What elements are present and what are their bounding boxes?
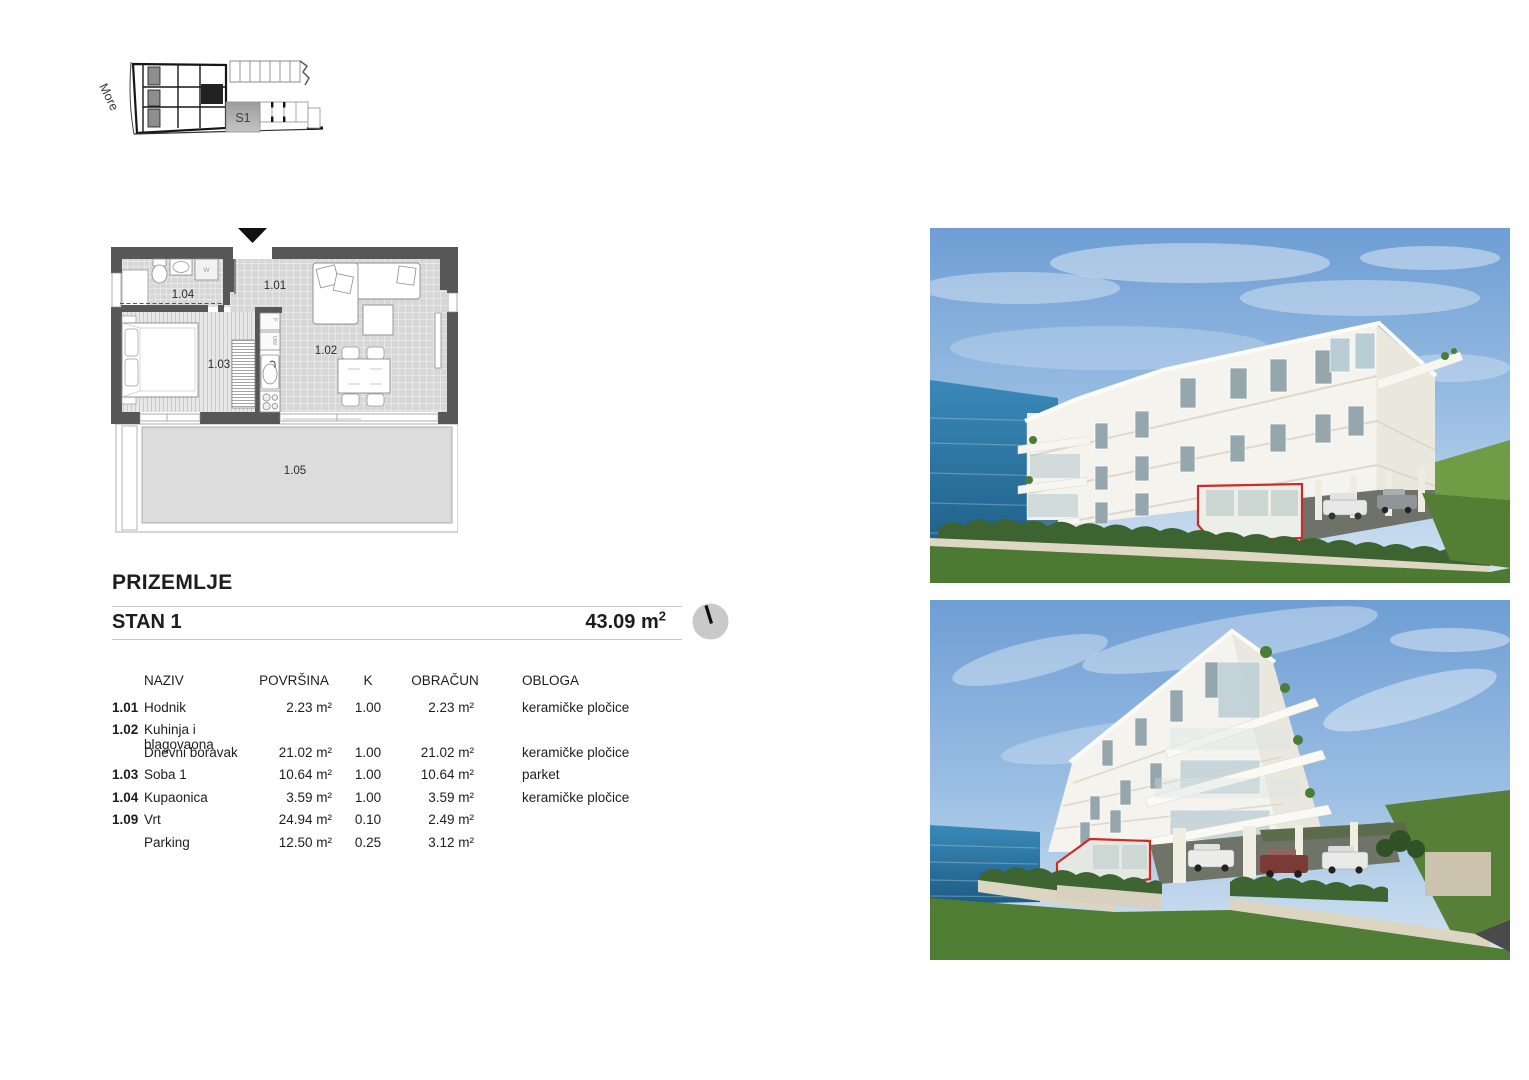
site-unit-s1-label: S1 [235, 111, 250, 125]
table-row: 1.04 Kupaonica 3.59 m² 1.00 3.59 m² kera… [112, 790, 732, 813]
terrace-garden [116, 424, 458, 532]
coffee-table [363, 305, 393, 335]
table-row: Dnevni boravak 21.02 m² 1.00 21.02 m² ke… [112, 745, 732, 768]
row-id: 1.04 [112, 790, 144, 805]
room-name: Dnevni boravak [144, 745, 256, 760]
room-name: Hodnik [144, 700, 256, 715]
room-name: Kupaonica [144, 790, 256, 805]
site-unit-s1: S1 [226, 102, 260, 132]
fridge-label: F [271, 318, 277, 322]
washing-machine-label: W [203, 267, 210, 274]
kitchen-counter [260, 313, 280, 412]
floor-title: PRIZEMLJE [112, 571, 233, 595]
table-row: Parking 12.50 m² 0.25 3.12 m² [112, 835, 732, 858]
area-value: 3.59 m² [256, 790, 332, 805]
site-parking-row-top [230, 61, 309, 85]
divider [112, 639, 682, 640]
table-row: 1.03 Soba 1 10.64 m² 1.00 10.64 m² parke… [112, 767, 732, 790]
area-value: 10.64 m² [256, 767, 332, 782]
unit-total-area: 43.09 m2 [585, 611, 682, 634]
calculated-area: 2.23 m² [404, 700, 486, 715]
table-row: 1.01 Hodnik 2.23 m² 1.00 2.23 m² keramič… [112, 700, 732, 723]
sea-label: More [96, 81, 121, 113]
room-name: Soba 1 [144, 767, 256, 782]
calculated-area: 2.49 m² [404, 812, 486, 827]
stone-block [1425, 852, 1491, 896]
floor-finish: keramičke pločice [486, 745, 696, 760]
floor-finish: keramičke pločice [486, 790, 696, 805]
coefficient: 1.00 [332, 767, 404, 782]
room-label-101: 1.01 [264, 280, 286, 292]
unit-area-exponent: 2 [659, 608, 666, 623]
area-value: 12.50 m² [256, 835, 332, 850]
divider [112, 606, 682, 607]
area-value: 21.02 m² [256, 745, 332, 760]
coefficient: 0.10 [332, 812, 404, 827]
area-value: 24.94 m² [256, 812, 332, 827]
area-table: NAZIV POVRŠINA K OBRAČUN OBLOGA 1.01 Hod… [112, 673, 732, 857]
room-label-103: 1.03 [208, 359, 230, 371]
room-name: Vrt [144, 812, 256, 827]
calculated-area: 3.12 m² [404, 835, 486, 850]
header-naziv: NAZIV [144, 673, 256, 688]
apartment-floor-plan: F DW W [111, 228, 458, 534]
highlighted-unit-outline [1198, 484, 1302, 541]
unit-header: STAN 1 43.09 m2 [112, 609, 682, 636]
floor-finish: parket [486, 767, 696, 782]
row-id: 1.02 [112, 722, 144, 737]
coefficient: 1.00 [332, 700, 404, 715]
area-value: 2.23 m² [256, 700, 332, 715]
dishwasher-label: DW [271, 336, 277, 346]
row-id: 1.09 [112, 812, 144, 827]
room-label-102: 1.02 [315, 345, 337, 357]
row-id: 1.03 [112, 767, 144, 782]
floorplan-sheet: More [0, 0, 1529, 1080]
building-render-photo-1 [930, 228, 1510, 583]
unit-name: STAN 1 [112, 611, 182, 634]
site-plan: More [85, 38, 340, 156]
entrance-arrow-icon [238, 228, 267, 243]
table-row: 1.09 Vrt 24.94 m² 0.10 2.49 m² [112, 812, 732, 835]
building-render-photo-2 [930, 600, 1510, 960]
unit-area-unit: m [641, 611, 659, 633]
radiator [435, 313, 441, 368]
unit-area-value: 43.09 [585, 611, 635, 633]
shower [122, 270, 148, 307]
row-id: 1.01 [112, 700, 144, 715]
calculated-area: 3.59 m² [404, 790, 486, 805]
header-k: K [332, 673, 404, 688]
table-header-row: NAZIV POVRŠINA K OBRAČUN OBLOGA [112, 673, 732, 696]
coefficient: 1.00 [332, 745, 404, 760]
coefficient: 1.00 [332, 790, 404, 805]
bed [122, 316, 198, 404]
coefficient: 0.25 [332, 835, 404, 850]
header-povrsina: POVRŠINA [256, 673, 332, 688]
north-compass-icon [691, 602, 731, 642]
table-row: 1.02 Kuhinja i blagovaona [112, 722, 732, 745]
header-obracun: OBRAČUN [404, 673, 486, 688]
room-name: Parking [144, 835, 256, 850]
wardrobe [232, 340, 255, 408]
calculated-area: 21.02 m² [404, 745, 486, 760]
room-label-104: 1.04 [172, 289, 195, 301]
site-parking-row-right [260, 102, 320, 128]
calculated-area: 10.64 m² [404, 767, 486, 782]
header-obloga: OBLOGA [486, 673, 696, 688]
floor-finish: keramičke pločice [486, 700, 696, 715]
room-label-105: 1.05 [284, 465, 306, 477]
